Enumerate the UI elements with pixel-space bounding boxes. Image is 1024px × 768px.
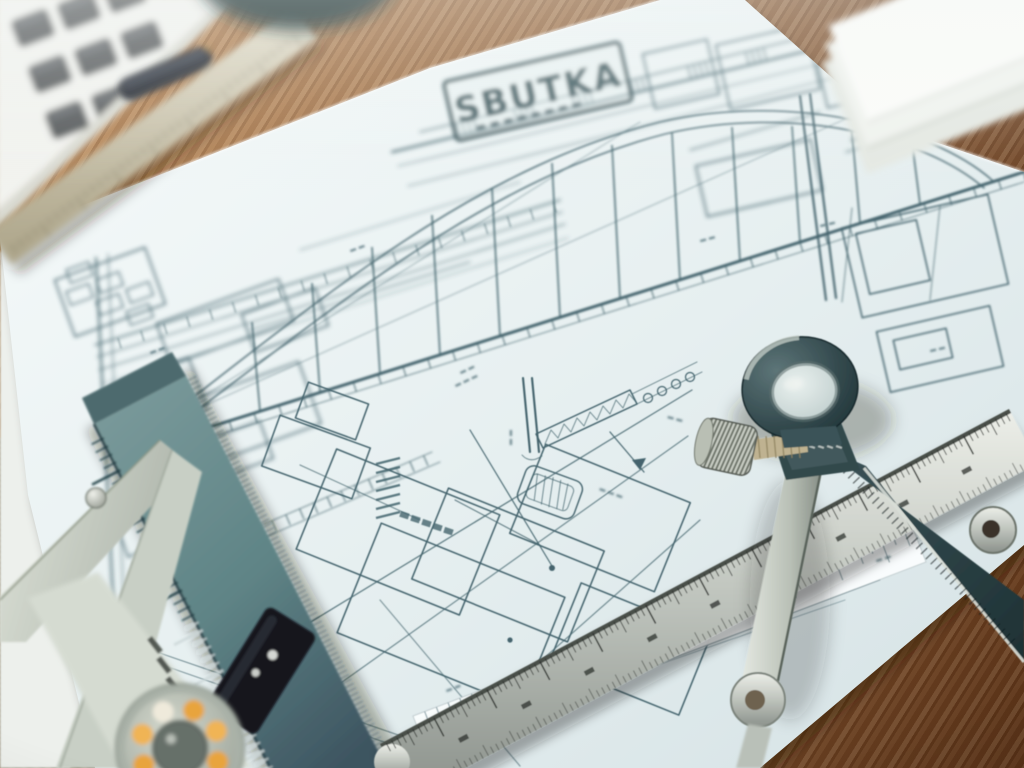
truss-hatch-tick	[821, 34, 825, 48]
photo-composition: SBUTKA	[0, 0, 1024, 768]
divider-endcap-hole	[745, 690, 765, 710]
leader-dot	[549, 565, 555, 571]
dial-orange-dot	[183, 700, 204, 721]
desk-scene: SBUTKA	[0, 0, 1024, 768]
truss-hatch-tick	[810, 37, 814, 51]
dial-white-dot	[153, 701, 174, 722]
dial-knob-highlight	[166, 734, 176, 744]
dial-center-knob	[153, 721, 207, 768]
truss-hatch-tick	[804, 38, 808, 52]
dial-orange-dot	[132, 724, 153, 745]
annotation-dash	[510, 439, 512, 445]
dial-orange-dot	[206, 721, 227, 742]
annotation-dash	[510, 430, 512, 436]
pivot-rivet	[86, 488, 106, 508]
leader-dot	[507, 637, 512, 642]
truss-hatch-tick	[815, 35, 819, 49]
dark-object-top	[196, 0, 400, 30]
leg-slider-hole	[982, 520, 1000, 538]
